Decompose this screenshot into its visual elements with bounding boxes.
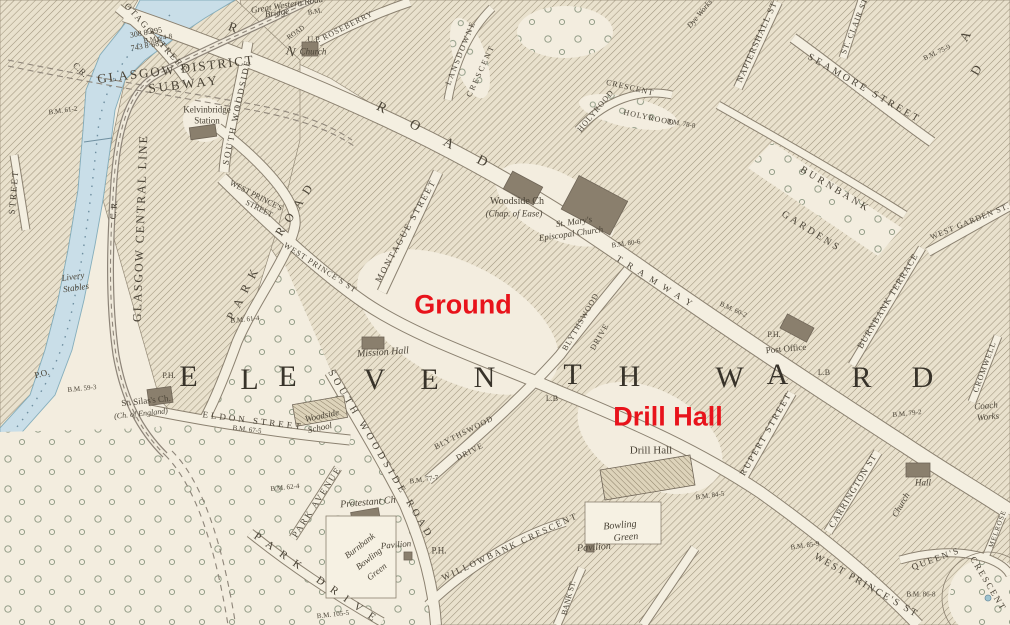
gwr-bridge-bm: B.M. [307,7,322,16]
ward-letter-e3: E [420,365,439,395]
livery-stables-2: Stables [63,282,90,295]
bank-st: BANK ST. [561,580,578,616]
lansdowne-2: CRESCENT [465,44,496,99]
queens-crescent-1: QUEEN'S [910,546,961,572]
st-clair-st: ST. CLAIR ST [840,0,870,55]
blythswood-s: BLYTHSWOOD [433,415,495,452]
protestant-church: Protestant Ch [340,496,396,511]
west-princes-st-3: WEST PRINCE'S ST [812,552,920,620]
chap-of-ease: (Chap. of Ease) [486,210,543,219]
bm-84-5: B.M. 84-5 [695,491,725,502]
ph-west: P.H. [162,372,175,380]
bm-67-5: B.M. 67-5 [232,425,262,435]
bm-78-8: B.M. 78-8 [666,118,696,130]
burnbank-gardens-2: GARDENS [779,210,842,255]
annotation-ground: Ground [414,290,511,321]
cr-upper: C.R. [71,61,89,79]
bm-86-8: B.M. 86-8 [907,592,936,599]
drill-hall-building-label: Drill Hall [630,446,672,457]
woodside-school-2: School [307,421,333,435]
road-small: ROAD [286,24,306,41]
letter-box-1: L.B [546,395,558,403]
tramway: TRAMWAY [614,254,699,312]
ward-letter-d: D [912,363,935,393]
ward-letter-l: L [240,365,259,395]
st-marys-2: Episcopal Church [538,225,604,243]
ward-letter-h: H [619,362,642,392]
willowbank-crescent: WILLOWBANK CRESCENT [440,511,579,582]
burnbank-terrace: BURNBANK TERRACE [856,252,920,351]
woodside-church: Woodside Ch [490,197,544,207]
roseberry: ROSEBERRY [321,10,374,42]
gwr-road-letters: ROAD [374,100,514,184]
glasgow-central-line: GLASGOW CENTRAL LINE [131,134,150,322]
coach-works-2: Works [977,412,1000,423]
up-church-1: U.P. [307,36,320,44]
ward-letter-t: T [563,360,582,390]
carrington-st: CARRINGTON ST [827,452,878,529]
post-office: Post Office [765,343,806,356]
holyrood-1: HOLYROOD [576,88,616,133]
bm-75-9: B.M. 75-9 [922,44,951,63]
ward-letter-n: N [474,363,497,393]
cr-mid: C. R. [109,200,120,219]
annotation-drill-hall: Drill Hall [613,402,723,433]
ward-letter-a: A [767,360,790,390]
up-church-2: Church [300,48,327,57]
burnbank-gardens-1: BURNBANK [798,165,872,215]
blythswood-s-drive: DRIVE [455,442,485,462]
pavilion-west: Pavilion [380,539,411,551]
queens-crescent-2: CRESCENT [968,555,1008,613]
west-princes-st-2: WEST PRINCE'S ST [282,241,358,294]
pavilion-east: Pavilion [577,542,612,554]
gwr-bridge: Bridge [264,7,290,20]
ward-letter-r: R [851,363,872,393]
road-letter-d: D [968,63,984,78]
bowling-green-e-2: Green [613,532,638,544]
church-vertical: Church [890,491,911,519]
hall-ne: Hall [915,479,931,488]
ward-letter-e2: E [278,362,297,392]
bm-61-4: B.M. 61-4 [230,315,260,325]
blythswood-n-drive: DRIVE [589,322,611,352]
park-avenue: PARK AVENUE [291,465,344,539]
mission-hall: Mission Hall [357,346,410,360]
ward-letter-w: W [715,363,744,393]
bm-77-7: B.M. 77-7 [409,475,439,486]
gwr-letter-r: R [227,19,240,34]
ph-post-office: P.H. [767,331,780,339]
bm-60-2: B.M. 60-2 [718,301,747,320]
map-canvas[interactable]: OTAGO STREETSTREETC.R.GLASGOW DISTRICTSU… [0,0,1010,625]
gwr-letter-n: N [284,43,297,58]
plot-743: 743 8·885 [130,39,164,53]
ward-letter-v: V [364,365,387,395]
bm-105-5: B.M. 105-5 [316,610,349,620]
ph-center: P.H. [431,547,446,556]
park-road-2: PARK [224,260,263,322]
montague-street: MONTAGUE STREET [374,178,438,284]
kelvinbridge-station-1: Kelvinbridge [183,106,231,115]
dye-works: Dye Works [686,0,714,30]
ward-letter-e1: E [179,362,198,392]
rupert-street: RUPERT STREET [738,391,793,478]
melrose: MELROSE [988,509,1008,549]
bm-61-2: B.M. 61-2 [48,106,78,117]
left-street: STREET [8,169,21,215]
bm-59-3: B.M. 59-3 [67,384,97,394]
kelvinbridge-station-2: Station [194,117,220,126]
bm-85-9: B.M. 85-9 [790,541,820,552]
letter-box-2: L.B [818,369,830,377]
post-office-west: P.O. [34,368,51,381]
bm-80-6: B.M. 80-6 [611,239,641,250]
west-garden-st: WEST GARDEN ST. [929,202,1010,241]
st-silas-2: (Ch. of England) [114,407,169,421]
bm-79-2: B.M. 79-2 [892,409,922,419]
road-letter-a: A [957,29,973,44]
bm-62-4: B.M. 62-4 [270,483,300,493]
seamore-street: SEAMORE STREET [806,52,923,125]
cromwell: CROMWELL [972,340,998,393]
napiershall-st: NAPIERSHALL ST [735,0,779,84]
